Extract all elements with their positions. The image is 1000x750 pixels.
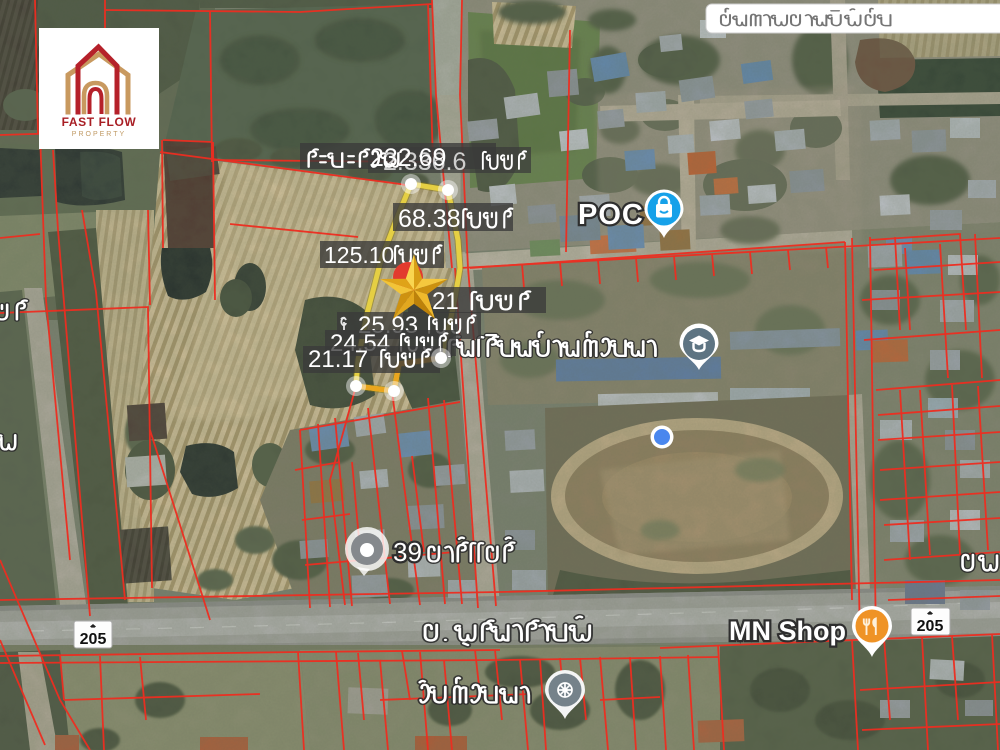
svg-text:125.10: 125.10: [324, 242, 394, 268]
svg-text:POC: POC: [578, 199, 644, 231]
svg-text:MN Shop: MN Shop: [729, 616, 846, 646]
svg-text:68.38: 68.38: [398, 205, 461, 233]
svg-text:2.336.6: 2.336.6: [383, 148, 466, 176]
svg-text:21: 21: [432, 288, 459, 315]
svg-text:FAST FLOW: FAST FLOW: [62, 115, 137, 129]
svg-text:205: 205: [917, 618, 944, 635]
svg-text:21.17: 21.17: [308, 346, 368, 373]
svg-text:PROPERTY: PROPERTY: [72, 131, 126, 138]
svg-text:205: 205: [80, 631, 107, 648]
svg-text:39: 39: [393, 537, 422, 567]
